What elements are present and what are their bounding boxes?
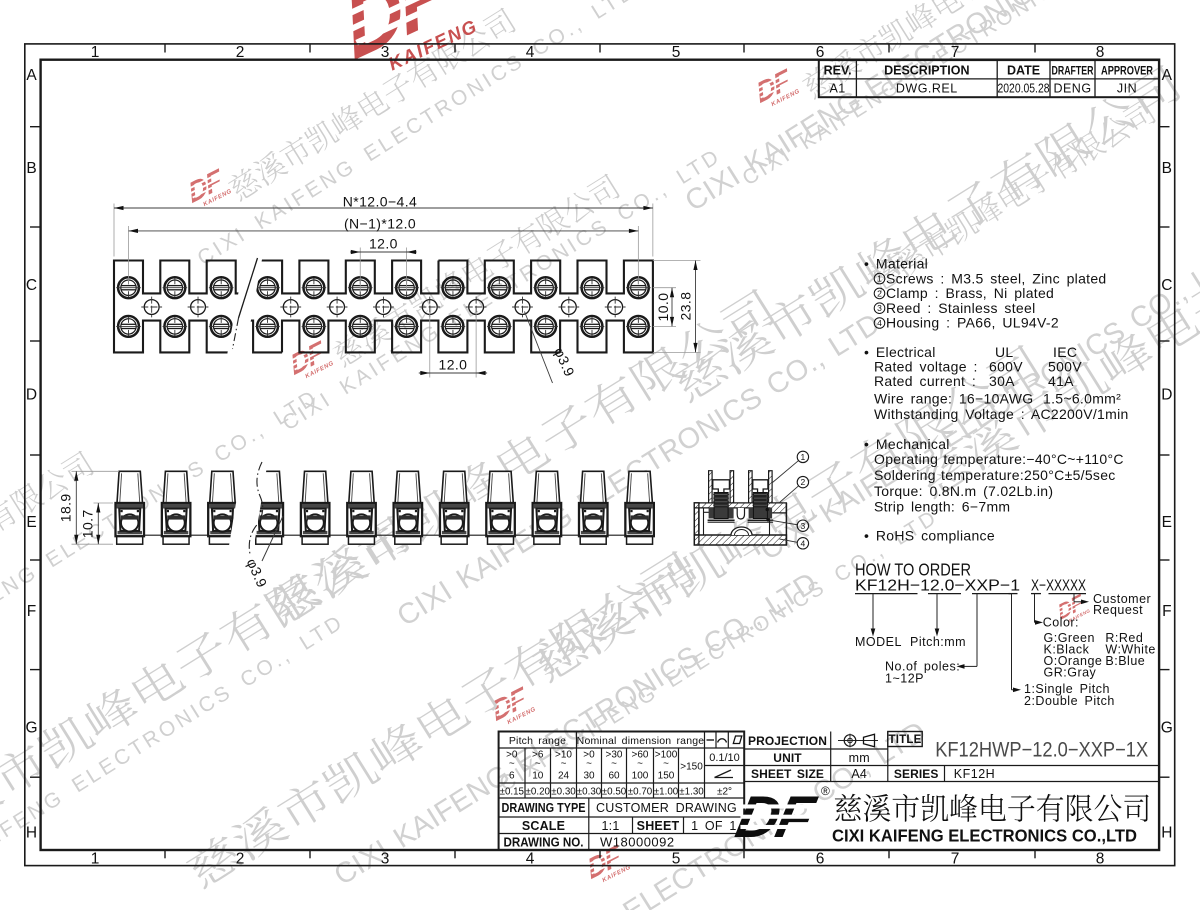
svg-text:APPROVER: APPROVER xyxy=(1101,66,1154,78)
svg-text:±0.15: ±0.15 xyxy=(500,786,525,797)
svg-text:• Mechanical: • Mechanical xyxy=(864,436,950,452)
svg-text:KF12H: KF12H xyxy=(954,767,995,781)
svg-text:Soldering temperature:250°C±5/: Soldering temperature:250°C±5/5sec xyxy=(874,467,1116,483)
svg-text:E: E xyxy=(26,514,36,531)
svg-text:1:1: 1:1 xyxy=(602,819,620,833)
svg-text:6: 6 xyxy=(509,771,515,782)
svg-text:8: 8 xyxy=(1096,851,1105,868)
svg-text:0.1/10: 0.1/10 xyxy=(709,752,740,764)
svg-text:>150: >150 xyxy=(680,762,703,773)
svg-text:±0.50: ±0.50 xyxy=(602,786,627,797)
svg-text:DENG: DENG xyxy=(1053,82,1091,96)
svg-text:Pitch range: Pitch range xyxy=(509,735,566,747)
svg-text:100: 100 xyxy=(632,771,649,782)
svg-text:W18000092: W18000092 xyxy=(600,834,675,849)
svg-text:DWG.REL: DWG.REL xyxy=(896,82,958,96)
svg-text:7: 7 xyxy=(951,851,960,868)
svg-text:SCALE: SCALE xyxy=(522,819,565,833)
svg-text:~: ~ xyxy=(611,759,617,770)
svg-text:H: H xyxy=(1161,824,1172,841)
svg-text:Nominal dimension range: Nominal dimension range xyxy=(577,735,705,747)
svg-text:IEC: IEC xyxy=(1053,344,1077,360)
svg-text:• Material: • Material xyxy=(864,256,928,272)
svg-text:4: 4 xyxy=(526,44,535,61)
svg-text:30: 30 xyxy=(583,771,595,782)
svg-text:2: 2 xyxy=(236,851,245,868)
svg-text:UNIT: UNIT xyxy=(773,751,802,765)
svg-text:Pitch:mm: Pitch:mm xyxy=(910,635,966,649)
svg-text:24: 24 xyxy=(558,771,570,782)
svg-text:2020.05.28: 2020.05.28 xyxy=(998,82,1050,96)
svg-text:3: 3 xyxy=(381,44,390,61)
svg-text:Operating temperature:−40°C~+1: Operating temperature:−40°C~+110°C xyxy=(874,451,1124,467)
svg-text:DRAWING NO.: DRAWING NO. xyxy=(504,835,584,849)
svg-text:mm: mm xyxy=(849,751,870,765)
svg-text:A4: A4 xyxy=(851,767,867,781)
svg-text:CIXI KAIFENG ELECTRONICS CO.,L: CIXI KAIFENG ELECTRONICS CO.,LTD xyxy=(832,826,1137,846)
svg-text:3: 3 xyxy=(381,851,390,868)
svg-text:CUSTOMER DRAWING: CUSTOMER DRAWING xyxy=(596,801,737,815)
svg-text:Wire range: 16−10AWG: Wire range: 16−10AWG xyxy=(874,390,1034,406)
svg-text:B:Blue: B:Blue xyxy=(1105,654,1145,668)
svg-text:~: ~ xyxy=(535,759,541,770)
svg-text:60: 60 xyxy=(608,771,620,782)
svg-text:E: E xyxy=(1162,514,1172,531)
svg-text:5: 5 xyxy=(672,851,681,868)
svg-text:F: F xyxy=(27,603,36,620)
svg-text:D: D xyxy=(26,387,37,404)
svg-text:±1.00: ±1.00 xyxy=(654,786,679,797)
svg-text:D: D xyxy=(1161,387,1172,404)
svg-text:±0.30: ±0.30 xyxy=(577,786,602,797)
svg-text:1.5~6.0mm²: 1.5~6.0mm² xyxy=(1043,390,1121,406)
svg-text:1 OF 1: 1 OF 1 xyxy=(691,819,736,833)
svg-text:• RoHS compliance: • RoHS compliance xyxy=(864,528,995,544)
svg-text:5: 5 xyxy=(672,44,681,61)
svg-text:~: ~ xyxy=(561,759,567,770)
svg-text:12.0: 12.0 xyxy=(439,357,468,373)
svg-text:2:Double Pitch: 2:Double Pitch xyxy=(1024,694,1115,708)
svg-text:23.8: 23.8 xyxy=(678,292,694,321)
svg-text:F: F xyxy=(1162,603,1171,620)
svg-text:GR:Gray: GR:Gray xyxy=(1044,665,1097,679)
svg-text:X−XXXXX: X−XXXXX xyxy=(1031,577,1086,594)
svg-text:G: G xyxy=(25,720,37,737)
svg-text:2: 2 xyxy=(877,288,882,298)
svg-text:~: ~ xyxy=(637,759,643,770)
svg-text:±0.20: ±0.20 xyxy=(526,786,551,797)
svg-text:1: 1 xyxy=(91,851,100,868)
svg-text:A1: A1 xyxy=(829,82,845,96)
svg-text:SHEET: SHEET xyxy=(637,819,680,833)
svg-text:±0.30: ±0.30 xyxy=(551,786,576,797)
svg-text:10.7: 10.7 xyxy=(80,509,96,538)
svg-text:C: C xyxy=(26,277,37,294)
svg-text:150: 150 xyxy=(658,771,675,782)
svg-text:41A: 41A xyxy=(1048,373,1074,389)
svg-text:Withstanding Voltage : AC2200V: Withstanding Voltage : AC2200V/1min xyxy=(874,406,1129,422)
svg-text:KF12H−12.0−XXP−1: KF12H−12.0−XXP−1 xyxy=(855,577,1020,594)
svg-text:REV.: REV. xyxy=(824,64,852,78)
svg-text:1: 1 xyxy=(801,452,806,462)
svg-text:4: 4 xyxy=(526,851,535,868)
svg-text:• Electrical: • Electrical xyxy=(864,344,936,360)
svg-text:H: H xyxy=(26,824,37,841)
svg-text:MODEL: MODEL xyxy=(855,635,902,649)
svg-text:N*12.0−4.4: N*12.0−4.4 xyxy=(343,194,417,210)
svg-text:Request: Request xyxy=(1093,603,1143,617)
svg-text:B: B xyxy=(1162,160,1172,177)
svg-text:®: ® xyxy=(821,784,830,798)
svg-text:Torque: 0.8N.m (7.02Lb.in): Torque: 0.8N.m (7.02Lb.in) xyxy=(874,483,1053,499)
svg-text:7: 7 xyxy=(951,44,960,61)
svg-text:JIN: JIN xyxy=(1117,82,1137,96)
svg-text:4: 4 xyxy=(801,538,806,548)
svg-text:1: 1 xyxy=(91,44,100,61)
svg-text:DESCRIPTION: DESCRIPTION xyxy=(884,64,969,78)
svg-text:KF12HWP−12.0−XXP−1X: KF12HWP−12.0−XXP−1X xyxy=(935,739,1148,762)
svg-text:C: C xyxy=(1161,277,1172,294)
svg-text:12.0: 12.0 xyxy=(369,236,398,252)
svg-text:Housing : PA66, UL94V-2: Housing : PA66, UL94V-2 xyxy=(886,315,1059,331)
svg-text:DATE: DATE xyxy=(1007,64,1040,78)
svg-text:Strip length: 6−7mm: Strip length: 6−7mm xyxy=(874,499,1010,515)
svg-text:B: B xyxy=(26,160,36,177)
svg-text:±2°: ±2° xyxy=(717,786,732,797)
svg-text:DRAWING TYPE: DRAWING TYPE xyxy=(502,801,586,815)
svg-text:3: 3 xyxy=(801,521,806,531)
svg-text:Reed : Stainless steel: Reed : Stainless steel xyxy=(886,300,1036,316)
svg-text:~: ~ xyxy=(509,759,515,770)
svg-text:~: ~ xyxy=(663,759,669,770)
svg-text:SHEET SIZE: SHEET SIZE xyxy=(751,767,824,781)
svg-text:Color:: Color: xyxy=(1043,616,1079,630)
svg-text:10.0: 10.0 xyxy=(655,293,671,322)
svg-text:1~12P: 1~12P xyxy=(885,672,924,686)
svg-text:SERIES: SERIES xyxy=(894,767,939,781)
svg-text:6: 6 xyxy=(816,851,825,868)
svg-text:18.9: 18.9 xyxy=(58,493,74,522)
svg-text:1: 1 xyxy=(877,274,882,284)
svg-text:8: 8 xyxy=(1096,44,1105,61)
svg-text:Rated current :: Rated current : xyxy=(874,373,976,389)
svg-text:4: 4 xyxy=(877,318,882,328)
svg-text:UL: UL xyxy=(995,344,1014,360)
svg-text:6: 6 xyxy=(816,44,825,61)
svg-text:A: A xyxy=(26,67,37,84)
svg-text:A: A xyxy=(1162,67,1173,84)
svg-text:Clamp : Brass, Ni plated: Clamp : Brass, Ni plated xyxy=(886,285,1054,301)
svg-text:PROJECTION: PROJECTION xyxy=(748,734,827,748)
svg-text:±0.70: ±0.70 xyxy=(628,786,653,797)
svg-text:30A: 30A xyxy=(989,373,1015,389)
svg-text:TITLE: TITLE xyxy=(889,734,922,746)
svg-text:3: 3 xyxy=(877,303,882,313)
svg-text:DRAFTER: DRAFTER xyxy=(1052,66,1095,78)
svg-text:10: 10 xyxy=(532,771,544,782)
svg-text:G: G xyxy=(1161,720,1173,737)
svg-text:±1.30: ±1.30 xyxy=(679,786,704,797)
svg-text:~: ~ xyxy=(586,759,592,770)
svg-text:(N−1)*12.0: (N−1)*12.0 xyxy=(344,216,416,232)
svg-text:2: 2 xyxy=(801,477,806,487)
svg-text:Screws : M3.5 steel, Zinc plat: Screws : M3.5 steel, Zinc plated xyxy=(886,270,1107,286)
svg-text:2: 2 xyxy=(236,44,245,61)
